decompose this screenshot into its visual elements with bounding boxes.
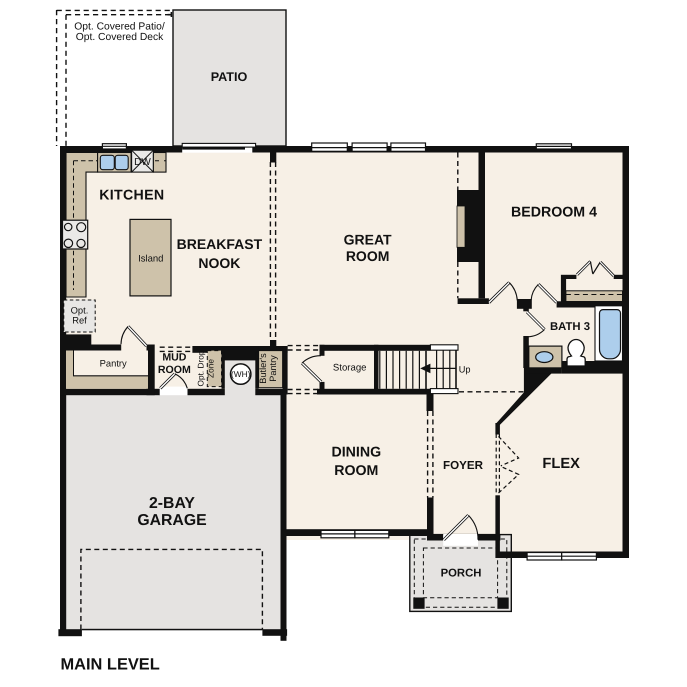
svg-text:MAIN LEVEL: MAIN LEVEL [61, 656, 160, 674]
svg-text:Up: Up [459, 365, 471, 375]
svg-text:2-BAY: 2-BAY [149, 495, 195, 512]
svg-text:GARAGE: GARAGE [137, 512, 206, 529]
svg-text:NOOK: NOOK [198, 255, 240, 271]
svg-text:Island: Island [138, 254, 163, 265]
svg-text:Opt. Covered Deck: Opt. Covered Deck [76, 32, 164, 43]
svg-text:PORCH: PORCH [441, 567, 482, 579]
svg-text:MUD: MUD [162, 351, 186, 363]
svg-text:ROOM: ROOM [334, 463, 378, 479]
svg-text:FLEX: FLEX [542, 456, 580, 472]
svg-text:Opt. Drop: Opt. Drop [195, 350, 205, 386]
svg-text:PATIO: PATIO [211, 70, 248, 84]
svg-text:GREAT: GREAT [344, 231, 392, 247]
svg-text:Pantry: Pantry [268, 355, 278, 382]
svg-text:Ref: Ref [72, 315, 87, 326]
svg-text:(WH): (WH) [231, 369, 251, 379]
svg-text:FOYER: FOYER [443, 459, 484, 472]
svg-text:BREAKFAST: BREAKFAST [177, 236, 263, 252]
svg-text:ROOM: ROOM [346, 248, 390, 264]
svg-text:ROOM: ROOM [158, 364, 191, 376]
svg-text:BATH 3: BATH 3 [550, 321, 590, 333]
svg-text:DW: DW [134, 157, 151, 168]
svg-text:Zone: Zone [206, 359, 216, 378]
svg-text:Pantry: Pantry [100, 357, 127, 368]
svg-text:Opt. Covered Patio/: Opt. Covered Patio/ [74, 21, 165, 32]
svg-text:Butler's: Butler's [258, 353, 268, 384]
svg-text:DINING: DINING [331, 445, 381, 461]
svg-text:BEDROOM 4: BEDROOM 4 [511, 205, 597, 221]
svg-text:KITCHEN: KITCHEN [99, 187, 164, 203]
svg-text:Storage: Storage [333, 363, 367, 374]
